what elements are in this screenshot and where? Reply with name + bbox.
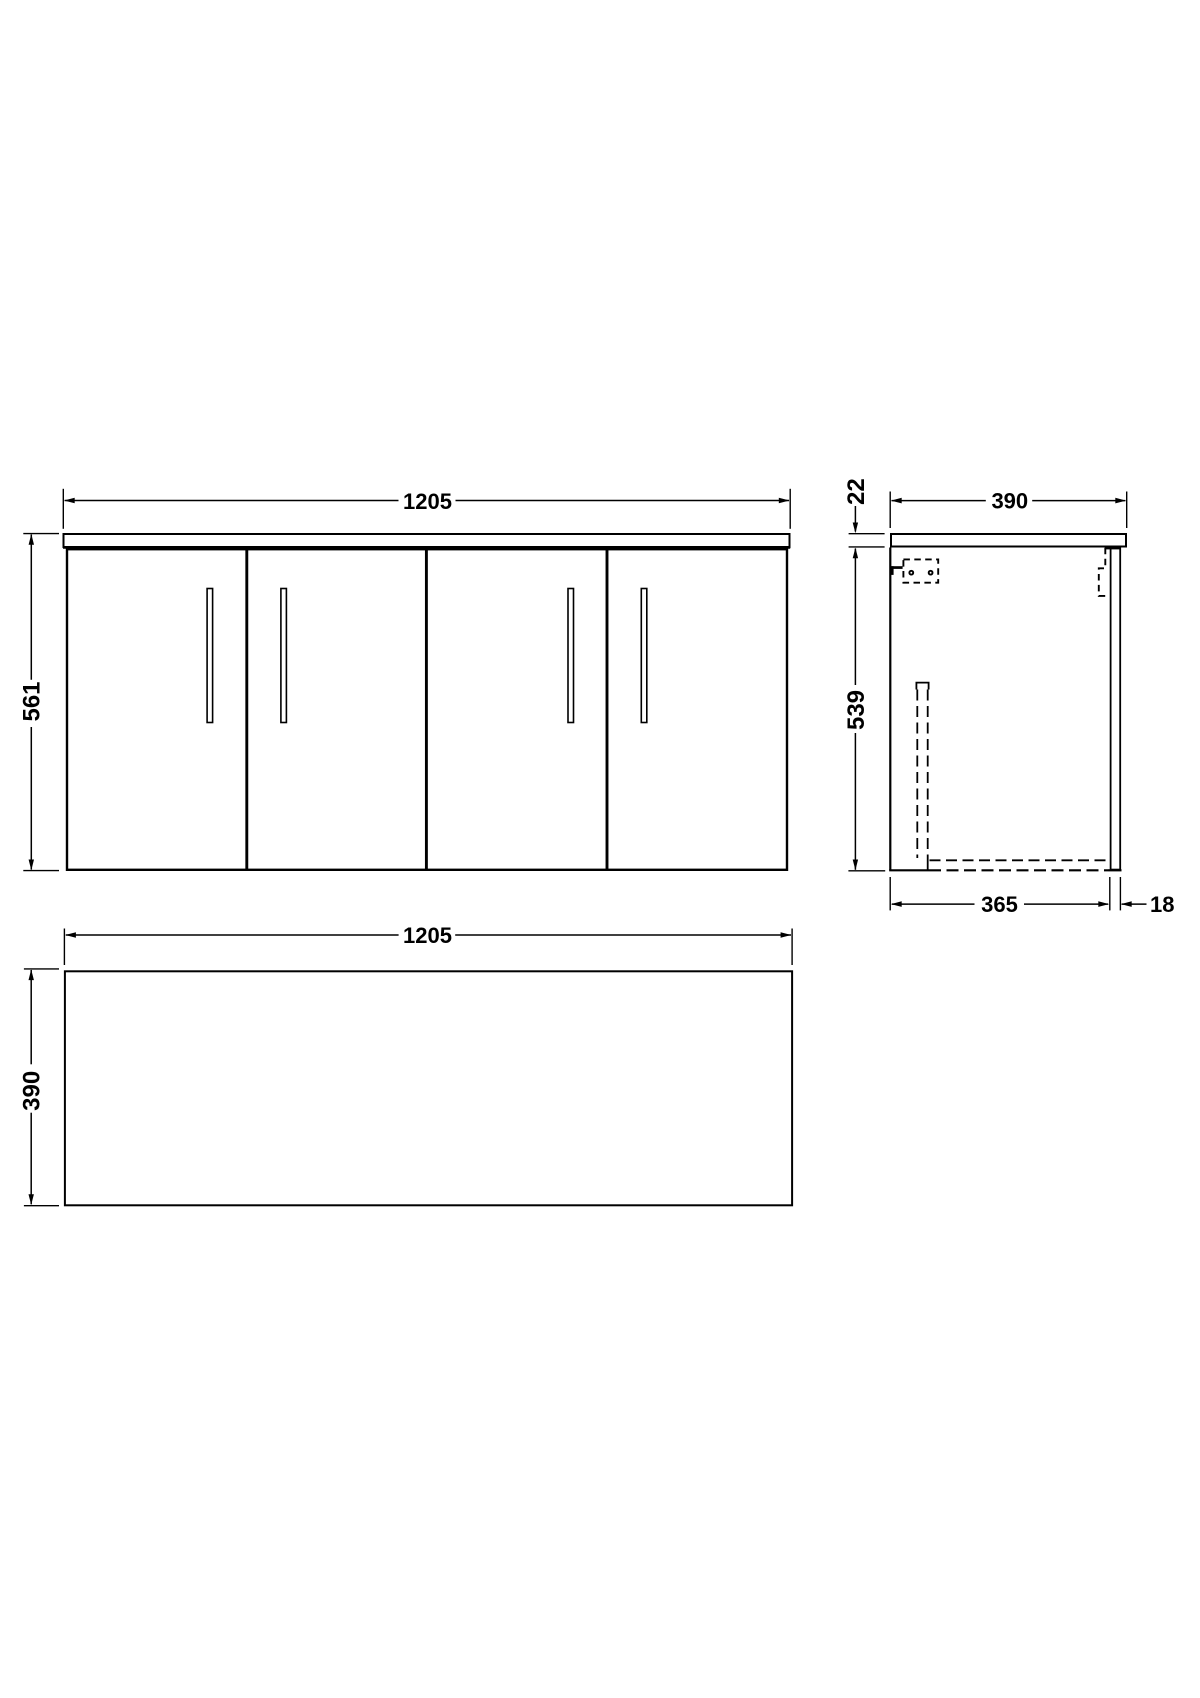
svg-text:1205: 1205 [403,489,452,514]
svg-text:561: 561 [19,681,46,721]
svg-text:390: 390 [991,489,1028,514]
svg-text:18: 18 [1150,892,1174,917]
svg-text:365: 365 [981,892,1018,917]
svg-text:539: 539 [843,690,870,730]
svg-text:390: 390 [19,1071,46,1111]
svg-text:1205: 1205 [403,923,452,948]
svg-text:22: 22 [843,478,870,505]
